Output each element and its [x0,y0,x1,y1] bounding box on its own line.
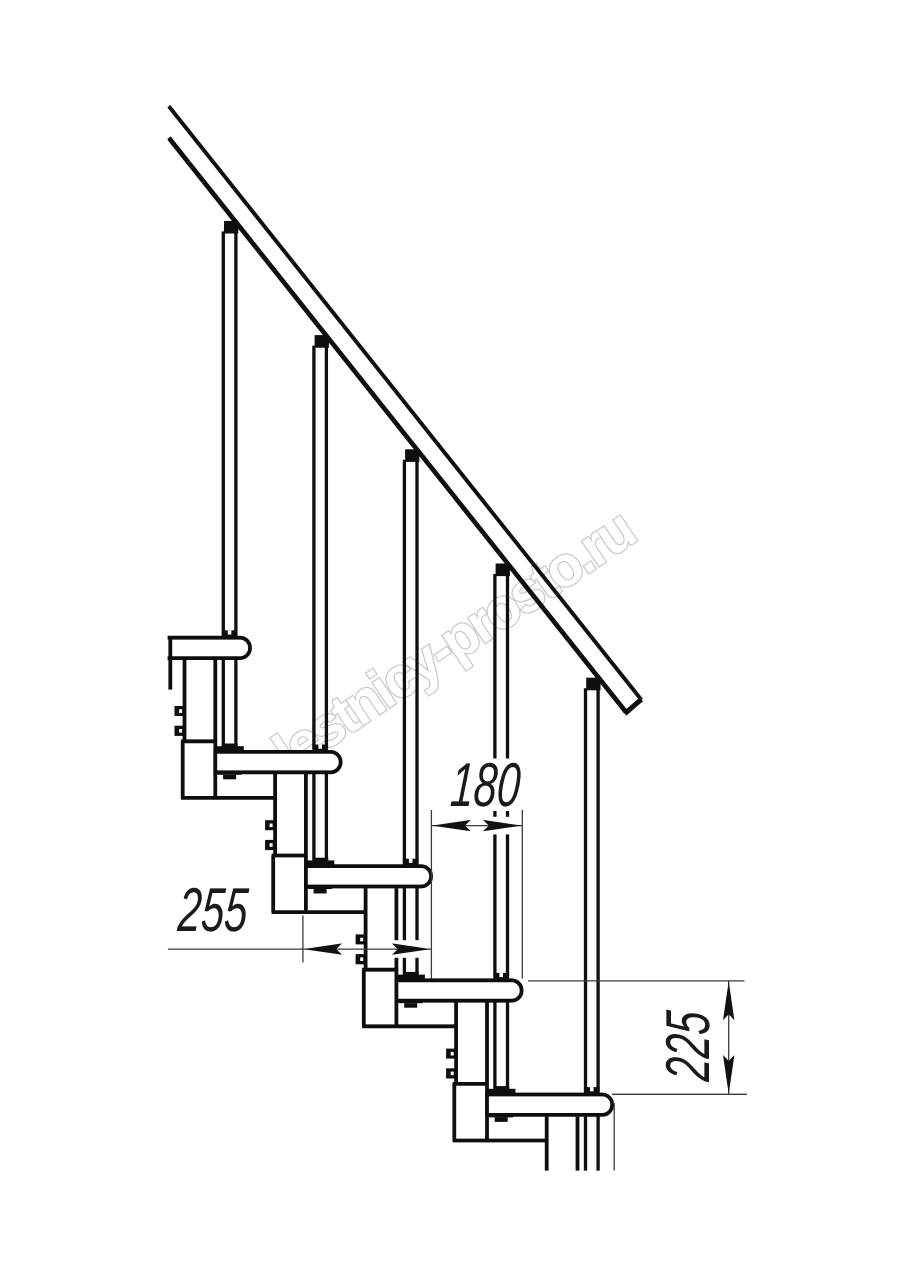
svg-text:180: 180 [449,751,523,820]
svg-text:225: 225 [654,1008,723,1083]
svg-text:255: 255 [175,876,250,945]
